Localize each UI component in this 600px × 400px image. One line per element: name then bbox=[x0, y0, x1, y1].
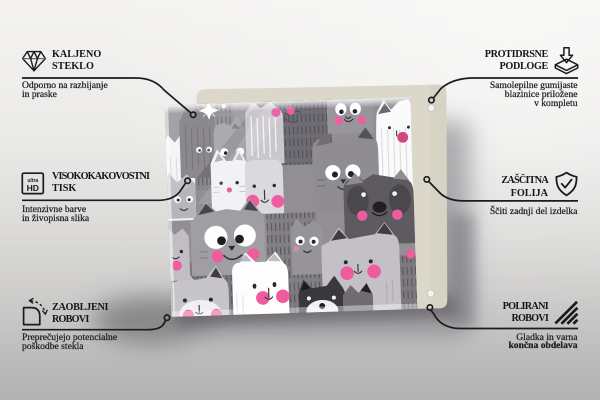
svg-text:HD: HD bbox=[27, 183, 39, 193]
